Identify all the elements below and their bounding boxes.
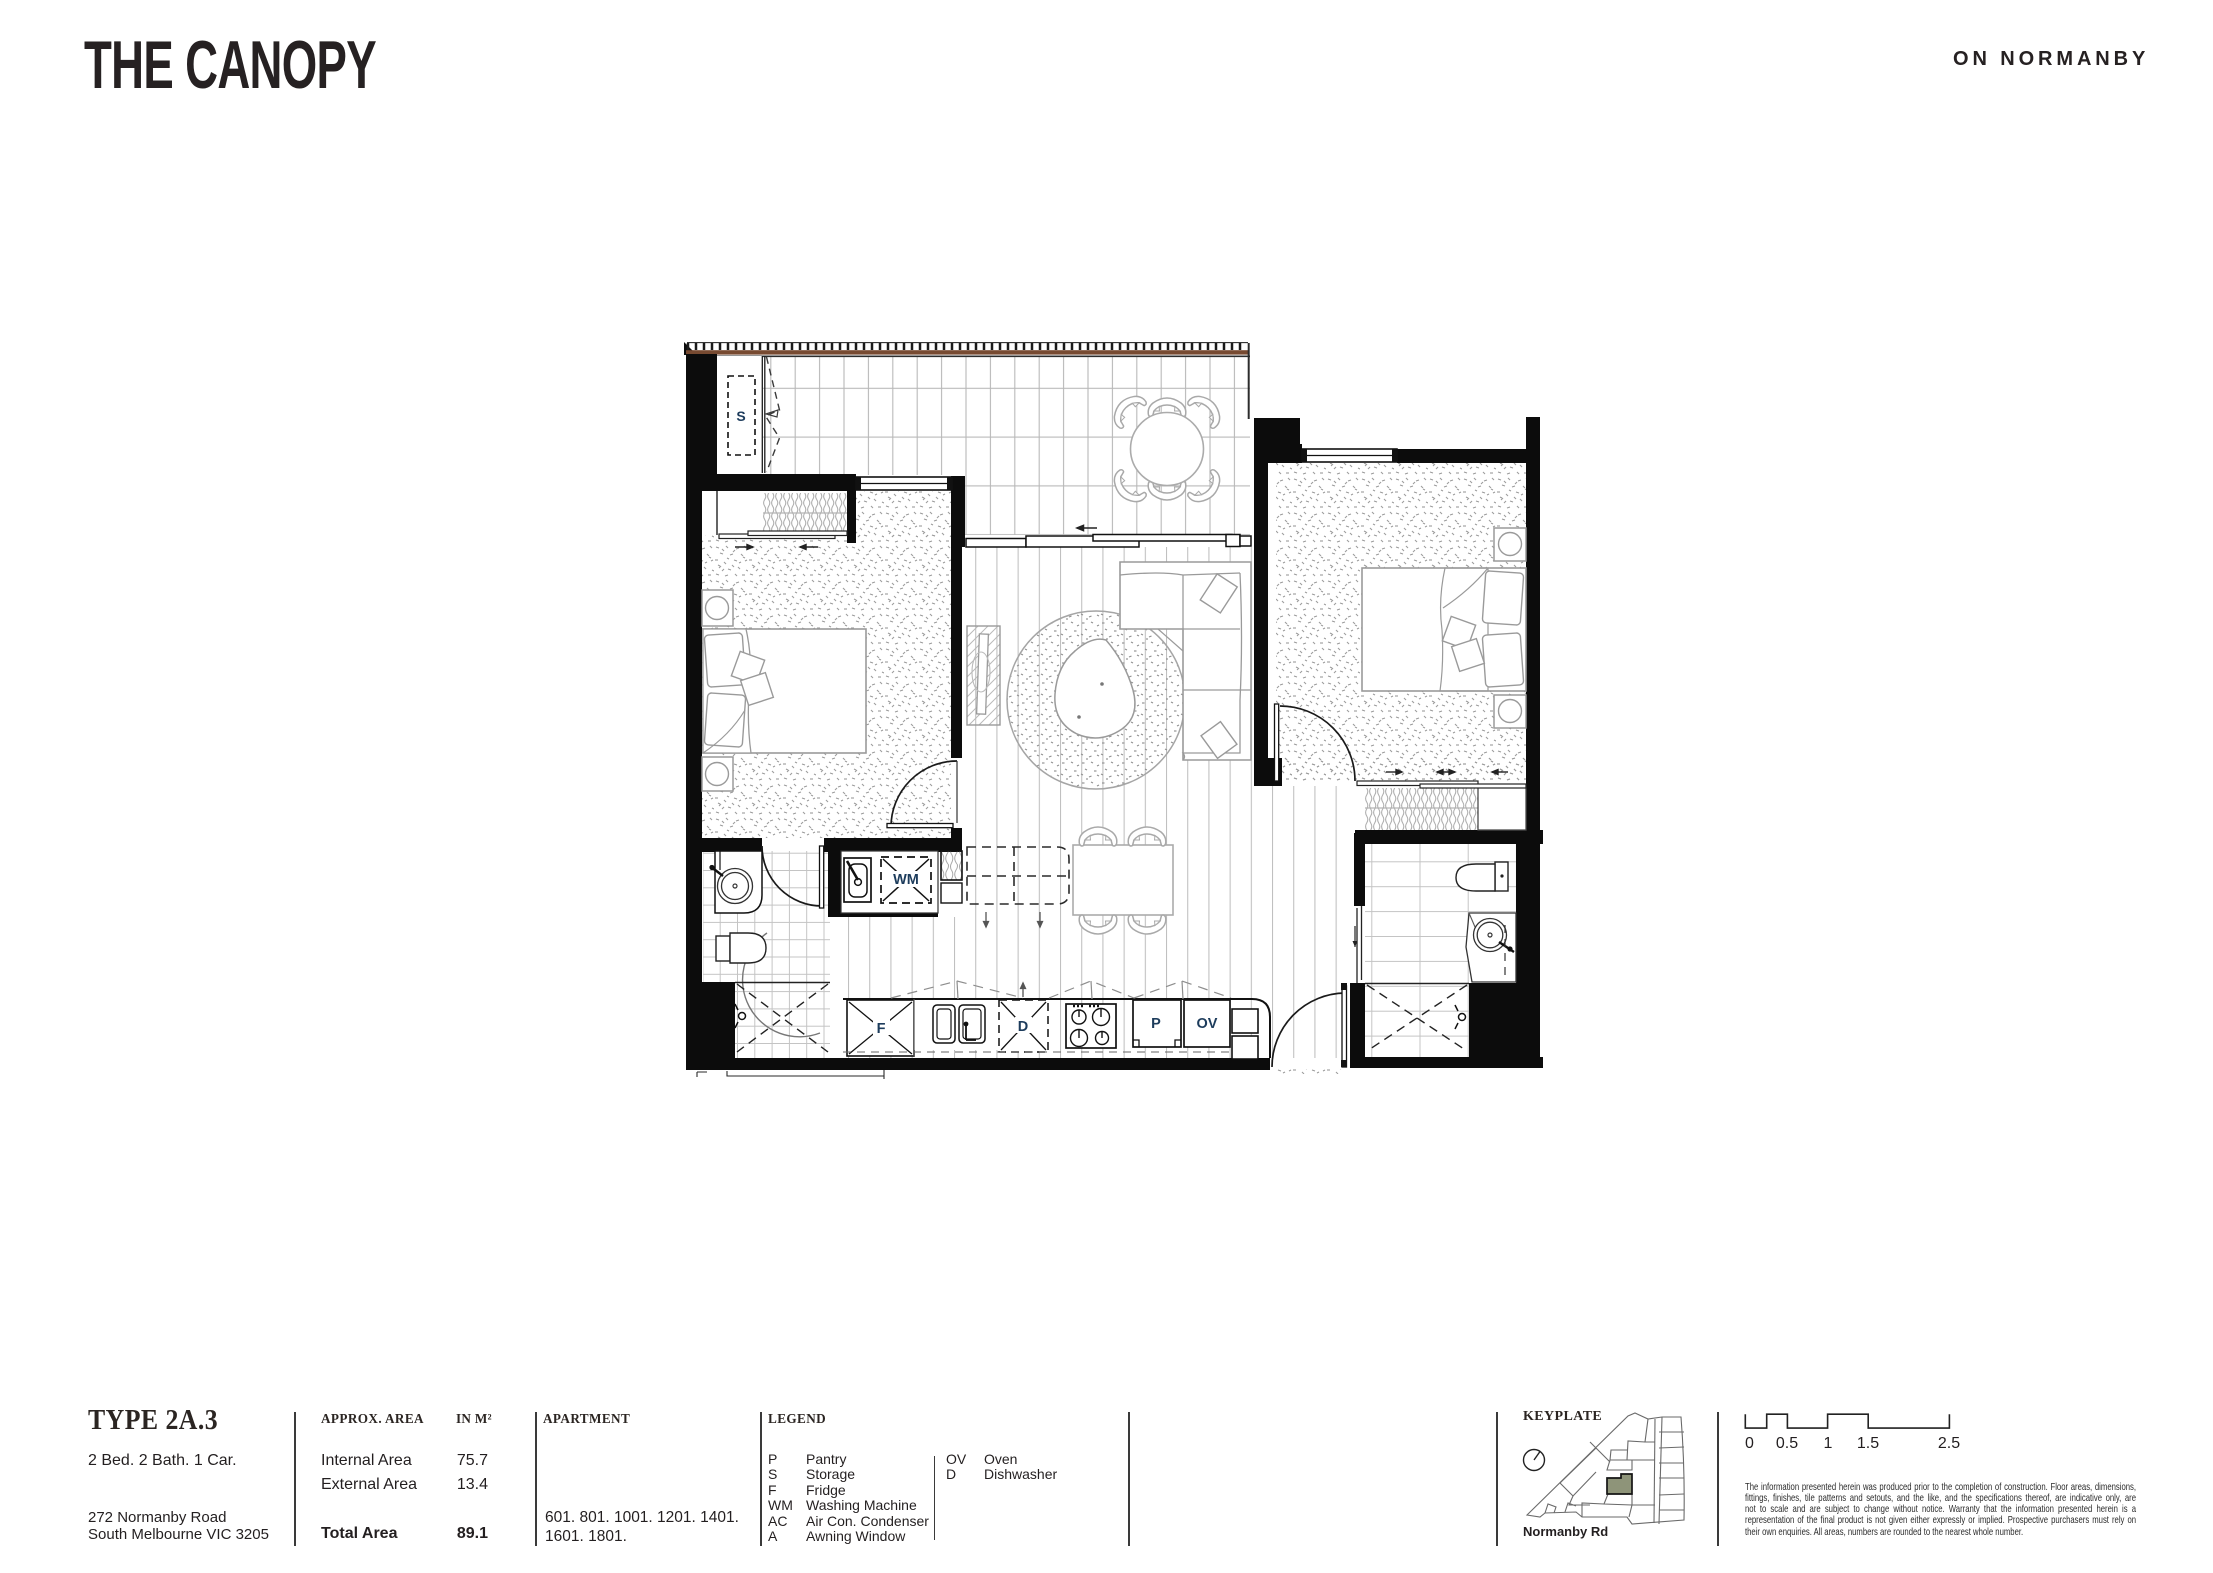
svg-text:F: F [877,1021,886,1037]
svg-text:OV: OV [1197,1016,1218,1032]
svg-text:P: P [1151,1016,1161,1032]
svg-text:D: D [1018,1019,1028,1035]
svg-text:WM: WM [893,872,919,888]
svg-text:S: S [736,408,745,424]
